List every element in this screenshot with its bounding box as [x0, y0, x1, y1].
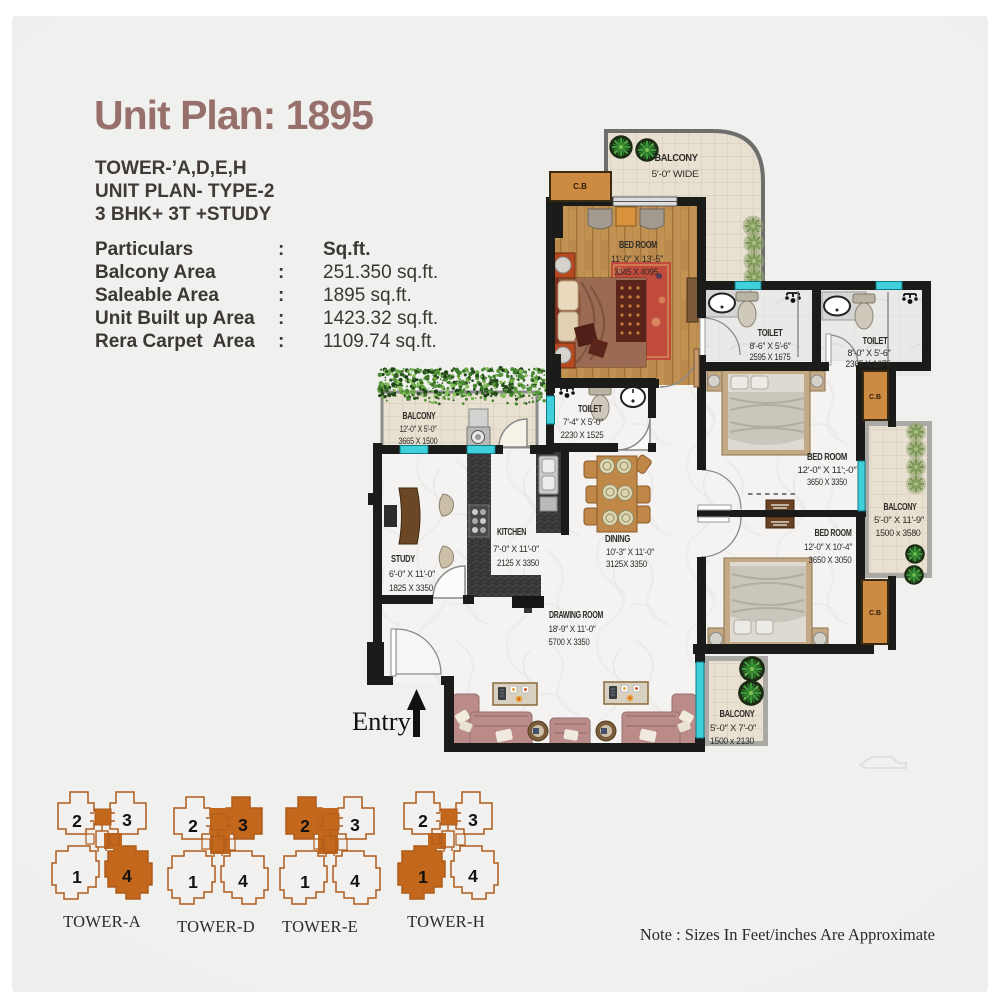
- svg-text:1500 x 2130: 1500 x 2130: [710, 736, 754, 747]
- svg-text:2: 2: [418, 811, 428, 831]
- svg-text:5′-0″ X 11′-9″: 5′-0″ X 11′-9″: [874, 515, 925, 526]
- svg-text:C.B: C.B: [869, 394, 881, 401]
- svg-text:3345 X 4095: 3345 X 4095: [614, 267, 658, 278]
- svg-text:3: 3: [350, 815, 360, 835]
- svg-text:BED ROOM: BED ROOM: [807, 452, 847, 463]
- svg-text:TOILET: TOILET: [758, 328, 783, 339]
- svg-text:3: 3: [468, 810, 478, 830]
- svg-text:C.B: C.B: [573, 182, 587, 191]
- svg-text:4: 4: [350, 871, 360, 891]
- svg-text:C.B: C.B: [869, 610, 881, 617]
- svg-text:BALCONY: BALCONY: [720, 709, 756, 720]
- svg-text:12′-0″ X 5′-0″: 12′-0″ X 5′-0″: [400, 424, 438, 435]
- svg-text:2: 2: [300, 816, 310, 836]
- svg-text:11′-0″ X 13′-5″: 11′-0″ X 13′-5″: [611, 254, 664, 265]
- svg-text:BED ROOM: BED ROOM: [619, 240, 657, 251]
- svg-text:2595 X 1675: 2595 X 1675: [750, 352, 791, 363]
- svg-text:TOWER-A: TOWER-A: [63, 912, 141, 931]
- svg-text:4: 4: [468, 866, 478, 886]
- svg-text:3: 3: [238, 815, 248, 835]
- svg-text:TOWER-E: TOWER-E: [282, 917, 358, 936]
- svg-text:TOILET: TOILET: [863, 336, 888, 347]
- svg-text:1: 1: [188, 872, 198, 892]
- svg-text:KITCHEN: KITCHEN: [497, 527, 526, 538]
- svg-text:5′-0″ X 7′-0″: 5′-0″ X 7′-0″: [710, 723, 757, 734]
- svg-text:Entry: Entry: [352, 706, 412, 736]
- svg-text:12′-0″ X 10′-4″: 12′-0″ X 10′-4″: [804, 542, 853, 553]
- svg-text:4: 4: [238, 871, 248, 891]
- svg-text:TOWER-D: TOWER-D: [177, 917, 255, 936]
- svg-text:2: 2: [188, 816, 198, 836]
- svg-text:TOWER-H: TOWER-H: [407, 912, 485, 931]
- svg-text:1: 1: [300, 872, 310, 892]
- svg-text:3650 X 3050: 3650 X 3050: [809, 555, 852, 566]
- svg-text:DINING: DINING: [605, 534, 630, 545]
- svg-text:Note : Sizes In Feet/inches Ar: Note : Sizes In Feet/inches Are Approxim…: [640, 925, 935, 944]
- svg-text:1500 x 3580: 1500 x 3580: [876, 528, 921, 539]
- svg-text:4: 4: [122, 866, 132, 886]
- svg-text:TOILET: TOILET: [578, 404, 602, 415]
- svg-text:BALCONY: BALCONY: [655, 153, 699, 164]
- svg-text:1825 X 3350: 1825 X 3350: [389, 583, 433, 594]
- svg-text:6′-0″ X 11′-0″: 6′-0″ X 11′-0″: [389, 569, 436, 580]
- svg-text:10′-3″ X 11′-0″: 10′-3″ X 11′-0″: [606, 547, 655, 558]
- svg-text:DRAWING ROOM: DRAWING ROOM: [549, 610, 603, 621]
- svg-text:2125 X 3350: 2125 X 3350: [497, 558, 539, 569]
- svg-text:BED ROOM: BED ROOM: [815, 528, 852, 539]
- svg-text:5700 X 3350: 5700 X 3350: [549, 637, 590, 648]
- svg-text:BALCONY: BALCONY: [403, 411, 437, 422]
- svg-text:3: 3: [122, 810, 132, 830]
- svg-text:2230 X 1525: 2230 X 1525: [561, 430, 604, 441]
- svg-text:BALCONY: BALCONY: [884, 502, 918, 513]
- svg-text:5′-0″ WIDE: 5′-0″ WIDE: [652, 169, 699, 180]
- svg-text:3650 X 3350: 3650 X 3350: [807, 477, 847, 488]
- svg-text:18′-9″ X 11′-0″: 18′-9″ X 11′-0″: [549, 624, 597, 635]
- svg-text:7′-0″ X 11′-0″: 7′-0″ X 11′-0″: [493, 544, 540, 555]
- svg-text:7′-4″ X 5′-0″: 7′-4″ X 5′-0″: [563, 417, 604, 428]
- svg-text:12′-0″ X 11′;-0″: 12′-0″ X 11′;-0″: [798, 465, 858, 476]
- svg-text:8′-0″ X 5′-6″: 8′-0″ X 5′-6″: [848, 348, 892, 359]
- svg-text:2365 X 1675: 2365 X 1675: [846, 359, 891, 370]
- svg-text:2: 2: [72, 811, 82, 831]
- svg-text:STUDY: STUDY: [391, 554, 416, 565]
- svg-text:1: 1: [418, 867, 428, 887]
- svg-text:1: 1: [72, 867, 82, 887]
- svg-text:3125X 3350: 3125X 3350: [606, 559, 647, 570]
- svg-text:8′-6″ X 5′-6″: 8′-6″ X 5′-6″: [750, 341, 792, 352]
